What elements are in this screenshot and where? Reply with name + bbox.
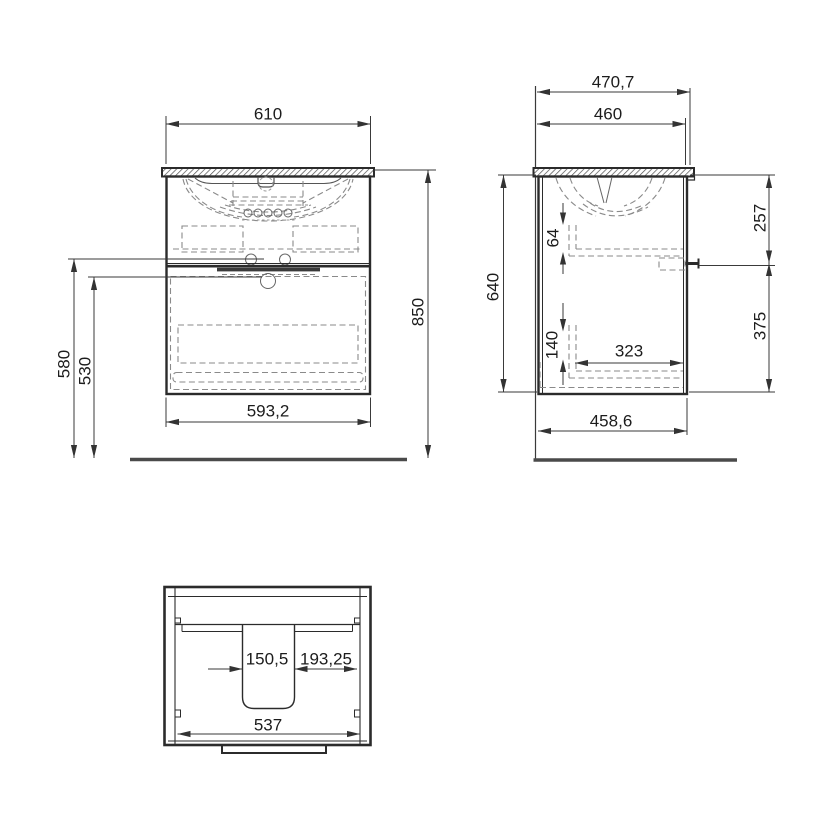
technical-drawing: 610 593,2 580 530 850 470,7 460 640 64 1… (0, 0, 830, 830)
front-view (162, 168, 374, 394)
dim-label-top-cutout-width: 150,5 (246, 651, 289, 668)
dim-label-side-depth-body: 460 (594, 106, 622, 123)
dim-label-front-width-bottom: 593,2 (247, 403, 290, 420)
dim-label-front-width-top: 610 (254, 106, 282, 123)
dim-label-side-depth-bottom: 458,6 (590, 413, 633, 430)
dim-label-side-inset-upper: 64 (545, 229, 562, 248)
dim-label-top-cutout-to-side: 193,25 (300, 651, 352, 668)
dim-label-side-inset-lower: 140 (544, 331, 561, 359)
dim-label-side-inner-depth: 323 (615, 343, 643, 360)
dim-label-side-top-to-bracket: 257 (752, 204, 769, 232)
dim-label-front-height-total: 850 (410, 298, 427, 326)
dim-label-side-bracket-to-bottom: 375 (752, 312, 769, 340)
drawing-canvas (0, 0, 830, 830)
dim-label-front-height-upper: 580 (56, 350, 73, 378)
side-view (534, 86, 700, 461)
dim-label-top-inner-width: 537 (254, 717, 282, 734)
dim-label-side-height-body: 640 (485, 273, 502, 301)
dim-label-front-height-lower: 530 (77, 357, 94, 385)
dim-label-side-depth-total: 470,7 (592, 74, 635, 91)
